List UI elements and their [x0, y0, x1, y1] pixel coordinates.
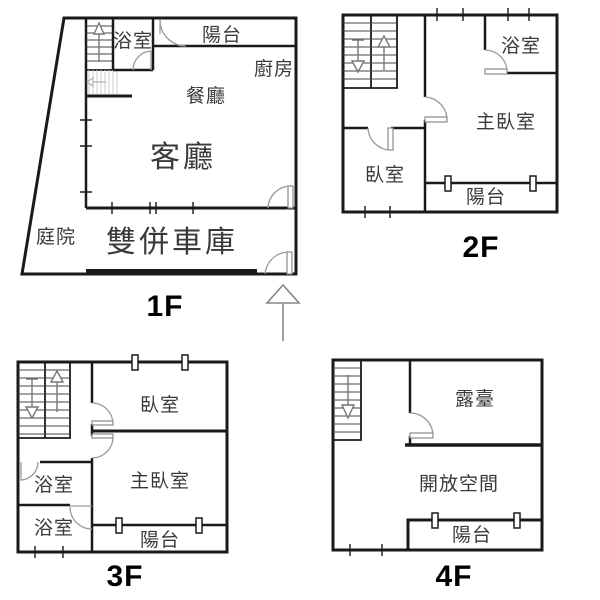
3f-room-label-bedroom: 臥室	[140, 394, 180, 416]
1f-room-label-living: 客廳	[150, 141, 216, 174]
4f-balcony-window	[514, 513, 520, 528]
4f-stairs-treads	[333, 368, 361, 432]
2f-floor-label: 2F	[462, 231, 499, 264]
3f-room-label-bath-lower: 浴室	[34, 517, 74, 539]
1f-entry-door-arc	[265, 252, 289, 274]
3f-master-door-arc	[92, 437, 113, 458]
floorplan-1f: 陽台 浴室 廚房 餐廳 客廳 庭院 雙併車庫 1F	[22, 18, 299, 341]
3f-stairs-down-arrowhead-icon	[26, 407, 38, 418]
2f-stairs-box	[343, 15, 397, 88]
4f-room-label-balcony: 陽台	[452, 524, 492, 546]
2f-stairs-down-arrowhead-icon	[352, 61, 364, 72]
3f-floor-label: 3F	[106, 560, 143, 593]
2f-balcony-window	[530, 176, 536, 191]
1f-room-label-garage: 雙併車庫	[106, 226, 238, 259]
floorplan-4f: 露臺 開放空間 陽台 4F	[333, 360, 542, 593]
3f-balcony-window	[196, 518, 202, 533]
1f-stairs-up-arrowhead-icon	[94, 23, 104, 34]
floorplan-drawing: 陽台 浴室 廚房 餐廳 客廳 庭院 雙併車庫 1F 浴室	[0, 0, 600, 600]
1f-entry-door-leaf	[287, 252, 292, 274]
3f-top-window	[182, 355, 188, 370]
1f-balcony-door-arc	[160, 20, 186, 46]
2f-room-label-balcony: 陽台	[466, 186, 506, 208]
2f-bathroom-door-leaf	[485, 69, 507, 74]
1f-room-label-courtyard: 庭院	[36, 226, 76, 248]
1f-room-label-dining: 餐廳	[186, 85, 226, 107]
3f-room-label-master: 主臥室	[130, 470, 190, 492]
2f-hall-door-leaf	[425, 117, 447, 122]
3f-bedroom-door-leaf	[92, 421, 113, 425]
3f-stairs-down-arrow-icon	[26, 379, 38, 407]
2f-room-label-master: 主臥室	[476, 111, 536, 133]
2f-room-label-bathroom: 浴室	[501, 35, 541, 57]
2f-stairs-treads	[343, 23, 397, 79]
4f-room-label-terrace: 露臺	[455, 388, 495, 410]
floorplan-3f: 臥室 主臥室 浴室 浴室 陽台 3F	[18, 355, 227, 593]
2f-stairs-up-arrowhead-icon	[378, 36, 390, 47]
1f-living-door-leaf	[288, 186, 293, 208]
floorplan-canvas: 陽台 浴室 廚房 餐廳 客廳 庭院 雙併車庫 1F 浴室	[0, 0, 600, 600]
3f-stairs-box	[18, 362, 70, 438]
2f-bedroom-door-leaf	[388, 128, 393, 150]
3f-room-label-balcony: 陽台	[140, 529, 180, 551]
3f-master-door-leaf	[92, 434, 113, 438]
4f-room-label-open-space: 開放空間	[419, 473, 499, 495]
4f-terrace-door-leaf	[410, 433, 433, 438]
3f-room-label-bath-upper: 浴室	[34, 474, 74, 496]
3f-balcony-window	[116, 518, 122, 533]
4f-floor-label: 4F	[435, 560, 472, 593]
2f-balcony-window	[445, 176, 451, 191]
1f-understair-arrowhead-icon	[87, 78, 93, 86]
3f-stairs-up-arrowhead-icon	[51, 371, 63, 382]
1f-floor-label: 1F	[146, 290, 183, 323]
2f-stairs-down-arrow-icon	[352, 40, 364, 61]
1f-room-label-balcony: 陽台	[202, 24, 242, 46]
4f-balcony-window	[432, 513, 438, 528]
1f-room-label-bathroom: 浴室	[113, 30, 153, 52]
3f-top-window	[132, 355, 138, 370]
floorplan-2f: 浴室 主臥室 臥室 陽台 2F	[343, 8, 557, 264]
4f-terrace-door-arc	[410, 413, 433, 435]
1f-bathroom-door-arc	[133, 51, 152, 70]
2f-room-label-bedroom: 臥室	[365, 164, 405, 186]
north-arrow-icon	[267, 285, 299, 303]
1f-room-label-kitchen: 廚房	[254, 57, 294, 80]
